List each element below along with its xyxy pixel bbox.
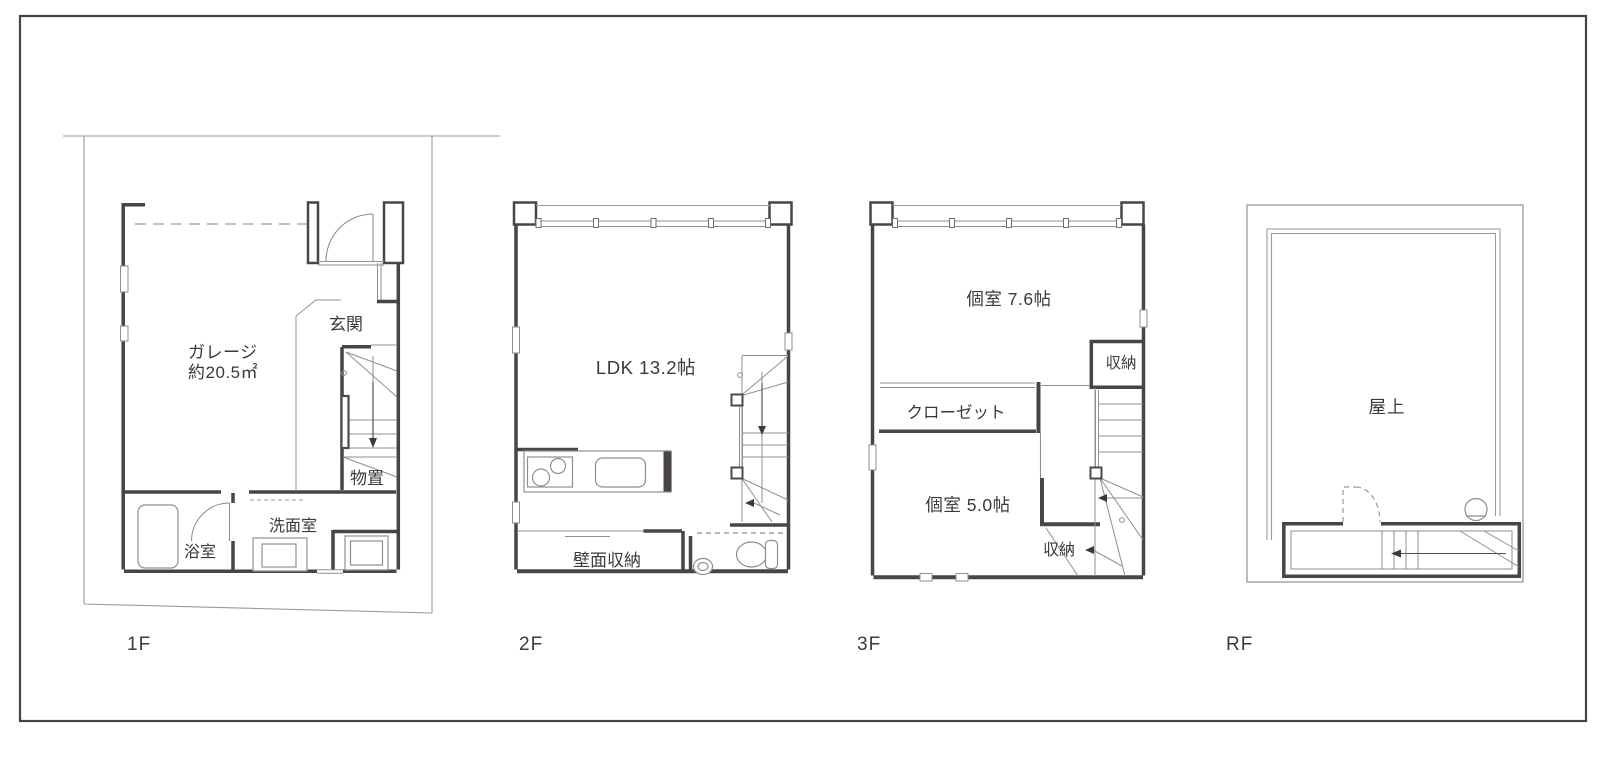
labels-2f: LDK 13.2帖 壁面収納 2F [519, 357, 696, 655]
stair-down-arrow-1f [369, 382, 377, 448]
floorplan-rf: 屋上 RF [1226, 205, 1523, 655]
floor-label-1f: 1F [127, 634, 151, 655]
labels-rf: 屋上 RF [1226, 397, 1406, 655]
washroom-label: 洗面室 [269, 517, 317, 535]
stairs-2f [738, 356, 788, 523]
room-7-6-label: 個室 7.6帖 [966, 289, 1051, 309]
floorplan-1f: ガレージ 約20.5㎡ 玄関 物置 洗面室 浴室 1F [63, 136, 500, 655]
stair-post [732, 468, 743, 479]
storage-upper-label: 収納 [1105, 354, 1136, 372]
rooftop-label: 屋上 [1369, 397, 1406, 417]
wall-storage-label: 壁面収納 [573, 551, 641, 570]
wall-post [514, 203, 536, 225]
floor-label-3f: 3F [857, 634, 881, 655]
bathroom-door-swing [192, 503, 230, 541]
garage-label: ガレージ [188, 343, 258, 362]
roof-door-dashed [1343, 487, 1380, 522]
walls-2f [516, 225, 789, 572]
garage-area-label: 約20.5㎡ [188, 363, 258, 382]
stairs-rf [1382, 531, 1519, 569]
bathroom-label: 浴室 [184, 543, 216, 561]
room-5-0-label: 個室 5.0帖 [925, 495, 1010, 515]
stair-enclosure-inner [1291, 531, 1512, 569]
wall-post [770, 203, 792, 225]
water-heater-unit [345, 536, 388, 570]
stairs-1f [342, 352, 397, 477]
ldk-label: LDK 13.2帖 [596, 357, 696, 378]
storage-label: 物置 [350, 469, 384, 488]
floor-label-2f: 2F [519, 634, 543, 655]
closet-label: クローゼット [907, 403, 1006, 422]
wall-storage-room [517, 531, 644, 537]
entrance-label: 玄関 [329, 315, 363, 334]
stair-arrow-rf [1391, 550, 1506, 558]
bathtub [138, 505, 178, 568]
floorplan-sheet: ガレージ 約20.5㎡ 玄関 物置 洗面室 浴室 1F [0, 0, 1600, 753]
wall-post [1122, 203, 1144, 225]
stair-post [1091, 468, 1102, 479]
labels-1f: ガレージ 約20.5㎡ 玄関 物置 洗面室 浴室 1F [127, 315, 384, 655]
stair-enclosure-walls [1284, 524, 1520, 577]
floorplan-2f: LDK 13.2帖 壁面収納 2F [513, 203, 793, 656]
toilet [694, 533, 788, 575]
water-tank [1465, 499, 1487, 521]
floorplan-3f: 個室 7.6帖 収納 クローゼット 個室 5.0帖 収納 3F [857, 203, 1147, 656]
storage-lower-label: 収納 [1043, 541, 1075, 559]
entrance-door-swing [318, 214, 384, 265]
windows-3f [869, 310, 1147, 581]
window-band-2f [536, 206, 771, 228]
entrance-wall-post [384, 203, 403, 264]
entrance-wall-post [308, 203, 318, 264]
parapet-railing [1267, 229, 1500, 540]
stair-handrail-1f [342, 396, 349, 448]
wall-post [871, 203, 893, 225]
stair-post [732, 395, 743, 406]
floor-label-rf: RF [1226, 634, 1253, 655]
washing-machine [253, 538, 307, 571]
kitchen-counter [524, 451, 672, 492]
window-band-3f [893, 206, 1122, 228]
walls-3f [873, 225, 1144, 578]
